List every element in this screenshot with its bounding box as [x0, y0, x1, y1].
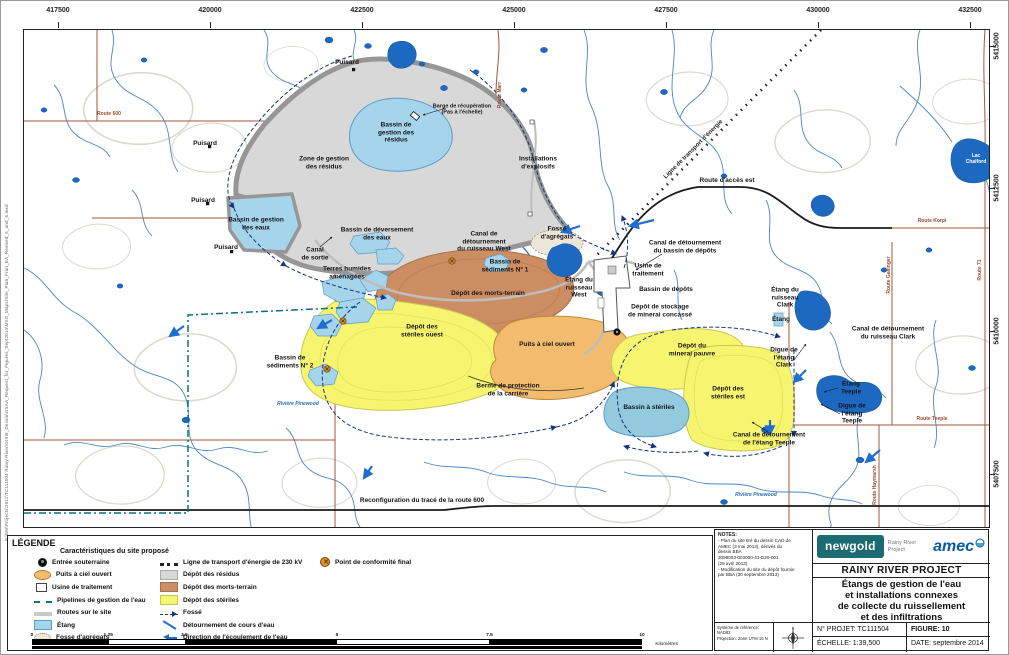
legend-item: Puits à ciel ouvert: [34, 569, 146, 582]
grid-tick: [818, 22, 819, 28]
grid-coordinate-label: 427500: [654, 7, 677, 14]
legend-item: Étang: [34, 619, 146, 632]
project-number-cell: N° PROJET: TC111504: [813, 623, 907, 637]
bassin-a-steriles: [604, 387, 689, 437]
detour-icon: [160, 620, 178, 630]
legend-item-label: Point de conformité final: [335, 559, 411, 566]
etang-clark-lake: [795, 291, 831, 330]
grid-tick: [58, 22, 59, 28]
legend-item-label: Détournement de cours d'eau: [183, 622, 274, 629]
legend-item: Usine de traitement: [34, 581, 146, 594]
facility-zones: [228, 59, 795, 451]
legend-item-label: Ligne de transport d'énergie de 230 kV: [183, 559, 302, 566]
legend-item: Dépôt des morts-terrain: [160, 581, 302, 594]
puits-icon: [34, 570, 51, 580]
newgold-project-label: Rainy River Project: [888, 540, 922, 553]
legend-subtitle: Caractéristiques du site proposé: [60, 548, 169, 555]
scale-tick-label: 0: [31, 633, 34, 638]
etang-teeple-lake: [817, 376, 882, 414]
title-block-right: newgold Rainy River Project amec RAINY R…: [813, 530, 990, 652]
grid-tick: [362, 22, 363, 28]
ligne230-icon: [160, 563, 178, 566]
scale-tick-label: 1.25: [104, 633, 113, 638]
puisard-marker: [352, 68, 355, 71]
legend-item-label: Routes sur le site: [57, 609, 111, 616]
notes-list: - Plan du site tiré du dessin CAD de AME…: [718, 538, 809, 578]
grid-tick: [970, 22, 971, 28]
scale-bar: 01.252.557.510 Kilomètres: [32, 633, 642, 649]
route-icon: [34, 612, 52, 616]
svg-text:N: N: [792, 626, 794, 630]
amec-wordmark: amec: [933, 538, 974, 556]
legend-item-label: Dépôt des résidus: [183, 571, 239, 578]
grid-coordinate-label: 425000: [502, 7, 525, 14]
legend-column-site: Entrée souterrainePuits à ciel ouvertUsi…: [34, 556, 146, 644]
conform-icon: [320, 557, 330, 567]
bassin-gestion-eaux: [228, 194, 300, 252]
legend-column-compliance: Point de conformité final: [320, 556, 411, 569]
lac-chalford: [951, 139, 989, 183]
legend-item-label: Étang: [57, 622, 75, 629]
scale-tick-label: 7.5: [486, 633, 493, 638]
legend-item: Fossé: [160, 606, 302, 619]
brand-row: newgold Rainy River Project amec: [813, 530, 990, 564]
usine-icon: [36, 583, 47, 592]
fosse-icon: [160, 614, 178, 615]
legend-item-label: Dépôt des morts-terrain: [183, 584, 257, 591]
legend-item-label: Fossé: [183, 609, 202, 616]
file-path-note: P:\EM\Projects\2011\TC111504 Rainy River…: [4, 151, 16, 541]
legend-item: Dépôt des résidus: [160, 569, 302, 582]
scale-unit-label: Kilomètres: [655, 642, 678, 647]
legend-item-label: Entrée souterraine: [52, 559, 109, 566]
map-drawing: [24, 30, 989, 527]
conformity-point: [340, 318, 346, 324]
grid-coordinate-label: 420000: [198, 7, 221, 14]
note-line: par BBA (30 septembre 2013): [718, 572, 809, 578]
puisard-marker: [206, 202, 209, 205]
route-600-reconfiguree: [24, 506, 989, 510]
legend-item-label: Dépôt des stériles: [183, 597, 239, 604]
legend-item: Entrée souterraine: [34, 556, 146, 569]
legend-item-label: Usine de traitement: [52, 584, 112, 591]
legend-item: Détournement de cours d'eau: [160, 619, 302, 632]
map-canvas: PuisardPuisardPuisardPuisardBarge de réc…: [23, 29, 990, 528]
notes-cell: NOTES: - Plan du site tiré du dessin CAD…: [715, 530, 813, 623]
legend-item: Point de conformité final: [320, 556, 411, 569]
figure-number-cell: FIGURE: 10: [907, 623, 990, 637]
figure-title: Étangs de gestion de l'eau et installati…: [813, 578, 990, 623]
grid-tick: [514, 22, 515, 28]
amec-logo: amec: [933, 538, 985, 556]
etang-ruisseau-west-lake: [547, 244, 582, 277]
conformity-point: [324, 366, 330, 372]
grid-tick: [666, 22, 667, 28]
scale-bar-lower: [32, 646, 642, 649]
reference-system-cell: Système de référence: NAD83 Projection: …: [715, 623, 774, 652]
depot-steriles-est: [684, 345, 795, 450]
residus-icon: [160, 570, 178, 580]
map-sheet: P:\EM\Projects\2011\TC111504 Rainy River…: [0, 0, 1009, 655]
scale-tick-label: 2.5: [181, 633, 188, 638]
newgold-logo: newgold: [817, 535, 884, 558]
grid-tick: [210, 22, 211, 28]
entree-icon: [38, 558, 47, 567]
amec-globe-icon: [975, 538, 985, 548]
scale-tick-label: 5: [336, 633, 339, 638]
underground-entrance: [613, 328, 620, 335]
legend-item: Pipelines de gestion de l'eau: [34, 594, 146, 607]
pipeline-icon: [34, 601, 52, 603]
steriles-icon: [160, 595, 178, 605]
legend-item: Ligne de transport d'énergie de 230 kV: [160, 556, 302, 569]
etang-icon: [34, 620, 52, 630]
scale-bar-labels: 01.252.557.510: [32, 633, 642, 639]
project-name: RAINY RIVER PROJECT: [813, 564, 990, 578]
scale-bar-segments: [32, 639, 642, 645]
north-arrow-icon: N: [781, 626, 805, 650]
title-block: NOTES: - Plan du site tiré du dessin CAD…: [714, 529, 989, 651]
power-line-230kv: [594, 30, 821, 258]
grid-coordinate-label: 430000: [806, 7, 829, 14]
legend-title: LÉGENDE: [12, 538, 56, 548]
morts-icon: [160, 582, 178, 592]
grid-coordinate-label: 417500: [46, 7, 69, 14]
route-acces-est: [612, 187, 892, 258]
puisard-marker: [230, 250, 233, 253]
date-cell: DATE: septembre 2014: [907, 637, 990, 652]
legend-column-features: Ligne de transport d'énergie de 230 kVDé…: [160, 556, 302, 644]
scale-tick-label: 10: [639, 633, 644, 638]
grid-coordinate-label: 422500: [350, 7, 373, 14]
puisard-marker: [208, 145, 211, 148]
legend-item-label: Puits à ciel ouvert: [56, 571, 112, 578]
scale-cell: ÉCHELLE: 1:39,500: [813, 637, 907, 652]
legend-item-label: Pipelines de gestion de l'eau: [57, 597, 146, 604]
legend-item: Routes sur le site: [34, 606, 146, 619]
grid-coordinate-label: 432500: [958, 7, 981, 14]
legend-panel: LÉGENDE Caractéristiques du site proposé…: [7, 535, 713, 651]
conformity-point: [449, 258, 455, 264]
legend-item: Dépôt des stériles: [160, 594, 302, 607]
compass-cell: N: [774, 623, 813, 652]
